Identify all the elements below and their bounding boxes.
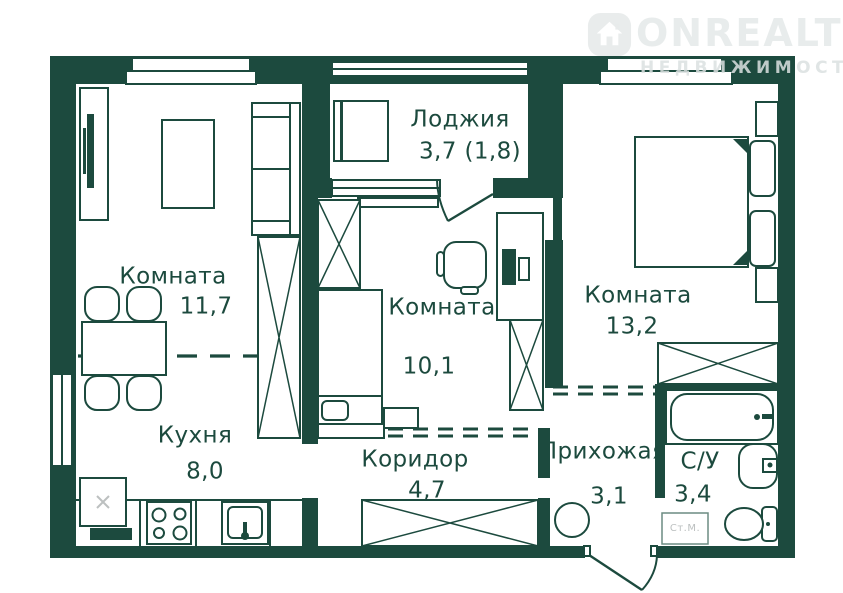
label-loggia-area: 3,7 (1,8): [419, 141, 521, 164]
floorplan-canvas: Лоджия 3,7 (1,8) Комната 11,7 Комната 10…: [0, 0, 843, 593]
loggia-furniture: [334, 101, 388, 161]
bed-bench: [318, 424, 384, 438]
corridor-furniture: [362, 500, 589, 546]
entrance-door-jamb-right: [651, 546, 657, 556]
tv: [87, 114, 94, 188]
balcony-door-leaf: [448, 194, 493, 221]
kitchen-faucet-base: [241, 532, 249, 540]
outer-wall-bottom-left: [50, 546, 585, 558]
toilet-bowl: [725, 508, 763, 540]
label-kitchen-name: Кухня: [158, 425, 232, 448]
label-corridor-name: Коридор: [361, 449, 468, 472]
entrance-door-jamb-left: [584, 546, 590, 556]
label-washing-machine: Ст.М.: [670, 524, 700, 534]
kitchen-faucet: [243, 522, 247, 533]
desk-chair: [444, 242, 486, 288]
loggia-divider-wall: [493, 178, 563, 198]
dining-table: [82, 322, 166, 375]
pillow: [322, 401, 348, 420]
outer-wall-right: [778, 56, 795, 558]
nightstand: [756, 268, 778, 302]
pillow: [750, 141, 775, 196]
fridge-plinth: [90, 528, 132, 540]
monitor-stand: [519, 258, 529, 280]
window-bedroom-inner: [600, 71, 732, 84]
coffee-table: [162, 120, 214, 208]
interior-wall-kitchen-lower: [302, 498, 318, 546]
label-room-c-name: Комната: [584, 285, 691, 308]
window-living-inner: [126, 71, 256, 84]
desk-chair-arm: [437, 252, 444, 276]
label-loggia-name: Лоджия: [410, 109, 509, 132]
toilet-button: [766, 522, 770, 526]
chair: [85, 287, 119, 321]
pouf: [555, 503, 589, 537]
bedroom-furniture: [635, 102, 778, 384]
interior-wall-kitchen-upper: [302, 84, 318, 444]
chair: [127, 287, 161, 321]
chair: [85, 376, 119, 410]
balcony-window-sill: [358, 198, 438, 207]
entrance-door-leaf: [589, 555, 642, 590]
label-room-c-area: 13,2: [606, 316, 659, 339]
nightstand: [384, 408, 418, 428]
bathtub-faucet: [762, 414, 774, 419]
bathtub-drain: [754, 414, 760, 420]
window-bedroom-outer: [607, 58, 722, 71]
bedroom-door-leaf: [553, 182, 562, 240]
window-living-outer: [132, 58, 250, 71]
tv-bracket: [83, 128, 86, 174]
outer-wall-left: [50, 56, 76, 558]
desk-chair-base: [461, 287, 478, 294]
outer-wall-bottom-right: [657, 546, 795, 558]
chair: [127, 376, 161, 410]
loggia-divider-stub: [318, 178, 332, 198]
bedroom-left-wall: [545, 240, 563, 388]
label-bathroom-area: 3,4: [674, 484, 712, 507]
loggia-cabinet-side: [334, 101, 341, 161]
entrance-door-arc: [642, 555, 657, 590]
double-bed: [635, 137, 748, 267]
washbasin-tap-dot: [768, 463, 773, 468]
label-room-b-name: Комната: [388, 297, 495, 320]
label-hallway-name: Прихожая: [540, 441, 666, 464]
pillow: [750, 211, 775, 266]
bathtub: [666, 390, 778, 444]
kitchen-furniture: [76, 478, 302, 546]
loggia-left-wall: [318, 84, 330, 178]
label-room-b-area: 10,1: [403, 356, 456, 379]
label-room-a-name: Комната: [119, 266, 226, 289]
monitor: [502, 249, 516, 285]
label-hallway-area: 3,1: [590, 486, 628, 509]
bathroom-fixtures: [662, 390, 778, 544]
label-room-a-area: 11,7: [180, 296, 233, 319]
label-corridor-area: 4,7: [408, 480, 446, 503]
label-bathroom-name: С/У: [680, 451, 719, 474]
hall-corridor-wall-lower: [538, 498, 550, 546]
loggia-cabinet: [342, 101, 388, 161]
nightstand: [756, 102, 778, 136]
loggia-right-wall: [528, 84, 563, 178]
label-kitchen-area: 8,0: [186, 461, 224, 484]
